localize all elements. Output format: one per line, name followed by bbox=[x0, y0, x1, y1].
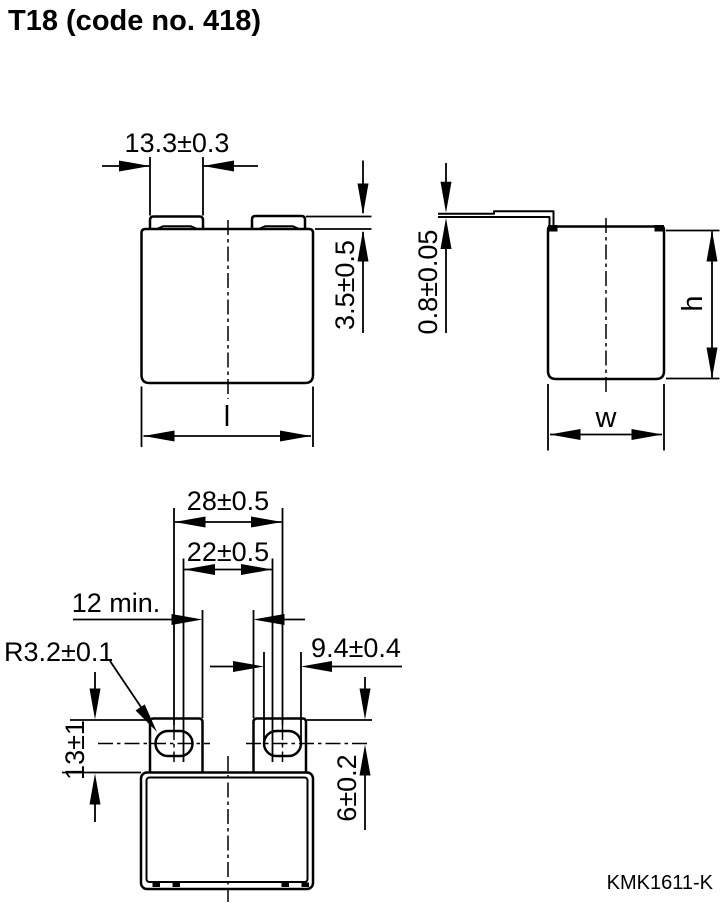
bottom-left-tab bbox=[150, 719, 203, 773]
bottom-body-outer bbox=[141, 773, 313, 890]
datasheet-drawing-page: T18 (code no. 418) 13.3±0.3 bbox=[0, 0, 720, 903]
page-title: T18 (code no. 418) bbox=[8, 5, 261, 37]
dim-side-width: w bbox=[548, 384, 664, 451]
bottom-body-inner bbox=[147, 778, 308, 883]
dim-label-bottom-hole-offset: 6±0.2 bbox=[332, 754, 362, 821]
dim-label-bottom-slot-length: 9.4±0.4 bbox=[311, 633, 401, 663]
dim-label-front-tab-height: 3.5±0.5 bbox=[330, 240, 360, 330]
dim-label-side-lead-thickness: 0.8±0.05 bbox=[413, 230, 443, 335]
bottom-foot-mark bbox=[302, 883, 310, 888]
front-view: 13.3±0.3 3.5±0.5 l bbox=[102, 128, 372, 447]
dim-front-tab-height: 3.5±0.5 bbox=[306, 161, 372, 334]
bottom-foot-mark bbox=[173, 883, 181, 888]
dim-label-bottom-terminal-height: 13±1 bbox=[60, 720, 90, 780]
side-right-terminal-nub bbox=[655, 225, 665, 232]
bottom-view: 28±0.5 22±0.5 12 min. bbox=[4, 486, 402, 902]
drawing-code: KMK1611-K bbox=[607, 872, 714, 894]
dim-label-bottom-outer-span: 28±0.5 bbox=[187, 486, 269, 516]
dim-label-bottom-inner-span: 22±0.5 bbox=[187, 537, 269, 567]
dim-label-side-width: w bbox=[595, 402, 618, 434]
dim-label-front-tab-width: 13.3±0.3 bbox=[125, 128, 230, 158]
dim-bottom-outer-span: 28±0.5 bbox=[174, 486, 283, 725]
dim-label-side-height: h bbox=[677, 295, 709, 311]
dim-label-bottom-slot-radius: R3.2±0.1 bbox=[4, 637, 113, 667]
dim-side-height: h bbox=[666, 231, 720, 379]
technical-drawing-canvas: T18 (code no. 418) 13.3±0.3 bbox=[0, 0, 720, 903]
dim-label-front-length: l bbox=[224, 401, 230, 433]
dim-bottom-inner-span: 22±0.5 bbox=[184, 537, 273, 762]
dim-side-lead-thickness: 0.8±0.05 bbox=[413, 163, 452, 334]
side-view: 0.8±0.05 h w bbox=[413, 163, 720, 451]
dim-bottom-slot-radius: R3.2±0.1 bbox=[4, 637, 157, 732]
dim-label-bottom-terminal-gap: 12 min. bbox=[72, 588, 161, 618]
bottom-foot-mark bbox=[153, 883, 161, 888]
bottom-foot-mark bbox=[282, 883, 290, 888]
bottom-right-tab bbox=[254, 719, 307, 773]
side-lug-top-edge bbox=[438, 211, 554, 226]
dim-front-length: l bbox=[142, 387, 314, 448]
side-lug-bottom-edge bbox=[438, 217, 550, 227]
dim-bottom-terminal-height: 13±1 bbox=[60, 672, 150, 822]
dim-front-tab-width: 13.3±0.3 bbox=[102, 128, 258, 216]
dim-bottom-hole-offset: 6±0.2 bbox=[307, 677, 372, 830]
